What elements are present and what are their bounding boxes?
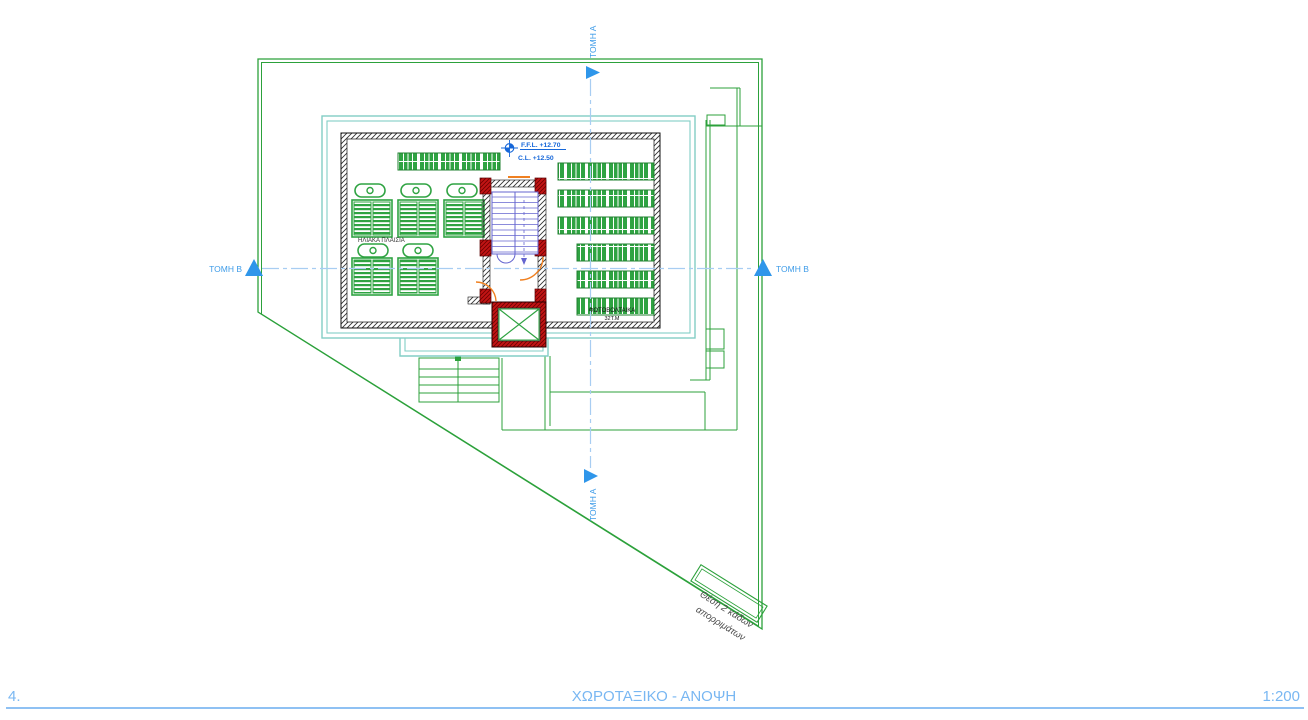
drawing-scale: 1:200 bbox=[1262, 688, 1300, 705]
exterior-stair bbox=[419, 356, 502, 430]
elevator-shaft bbox=[492, 302, 546, 347]
ffl-label: F.F.L. +12.70 bbox=[521, 142, 561, 149]
solar-strip bbox=[398, 153, 500, 170]
section-b-label-left: ΤΟΜΗ Β bbox=[209, 264, 242, 274]
section-a-arrow-top bbox=[586, 66, 600, 79]
section-a-arrow-bottom bbox=[584, 469, 598, 483]
section-b-arrow-left bbox=[245, 259, 263, 276]
cl-label: C.L. +12.50 bbox=[518, 155, 554, 162]
section-b-arrow-right bbox=[754, 259, 772, 276]
section-a-label-top: ΤΟΜΗ Α bbox=[588, 25, 598, 58]
waste-bins-area: Θέση 2 κάδων απορριμάτων bbox=[691, 565, 767, 644]
section-b-label-right: ΤΟΜΗ Β bbox=[776, 264, 809, 274]
section-a-label-bottom: ΤΟΜΗ Α bbox=[588, 488, 598, 521]
stair-flights bbox=[492, 192, 538, 265]
pv-label: ΦΩΤΟΒΟΛΤΑΙΚΑ bbox=[589, 308, 636, 314]
site-plan-drawing: ΗΛΙΑΚΑ ΠΛΑΙΣΙΑ ΦΩΤΟΒΟΛΤΑΙΚΑ 32Τ.Μ bbox=[0, 0, 1308, 720]
solar-panels-label: ΗΛΙΑΚΑ ΠΛΑΙΣΙΑ bbox=[358, 238, 405, 244]
title-bar-rule bbox=[6, 707, 1304, 709]
neighbor-structures bbox=[690, 88, 762, 430]
pv-area-label: 32Τ.Μ bbox=[605, 316, 620, 322]
cad-sheet: ΗΛΙΑΚΑ ΠΛΑΙΣΙΑ ΦΩΤΟΒΟΛΤΑΙΚΑ 32Τ.Μ bbox=[0, 0, 1308, 720]
terrace-outline bbox=[502, 356, 737, 430]
drawing-title-bar: 4. ΧΩΡΟΤΑΞΙΚΟ - ΑΝΟΨΗ 1:200 bbox=[0, 686, 1308, 720]
drawing-title: ΧΩΡΟΤΑΞΙΚΟ - ΑΝΟΨΗ bbox=[0, 688, 1308, 705]
